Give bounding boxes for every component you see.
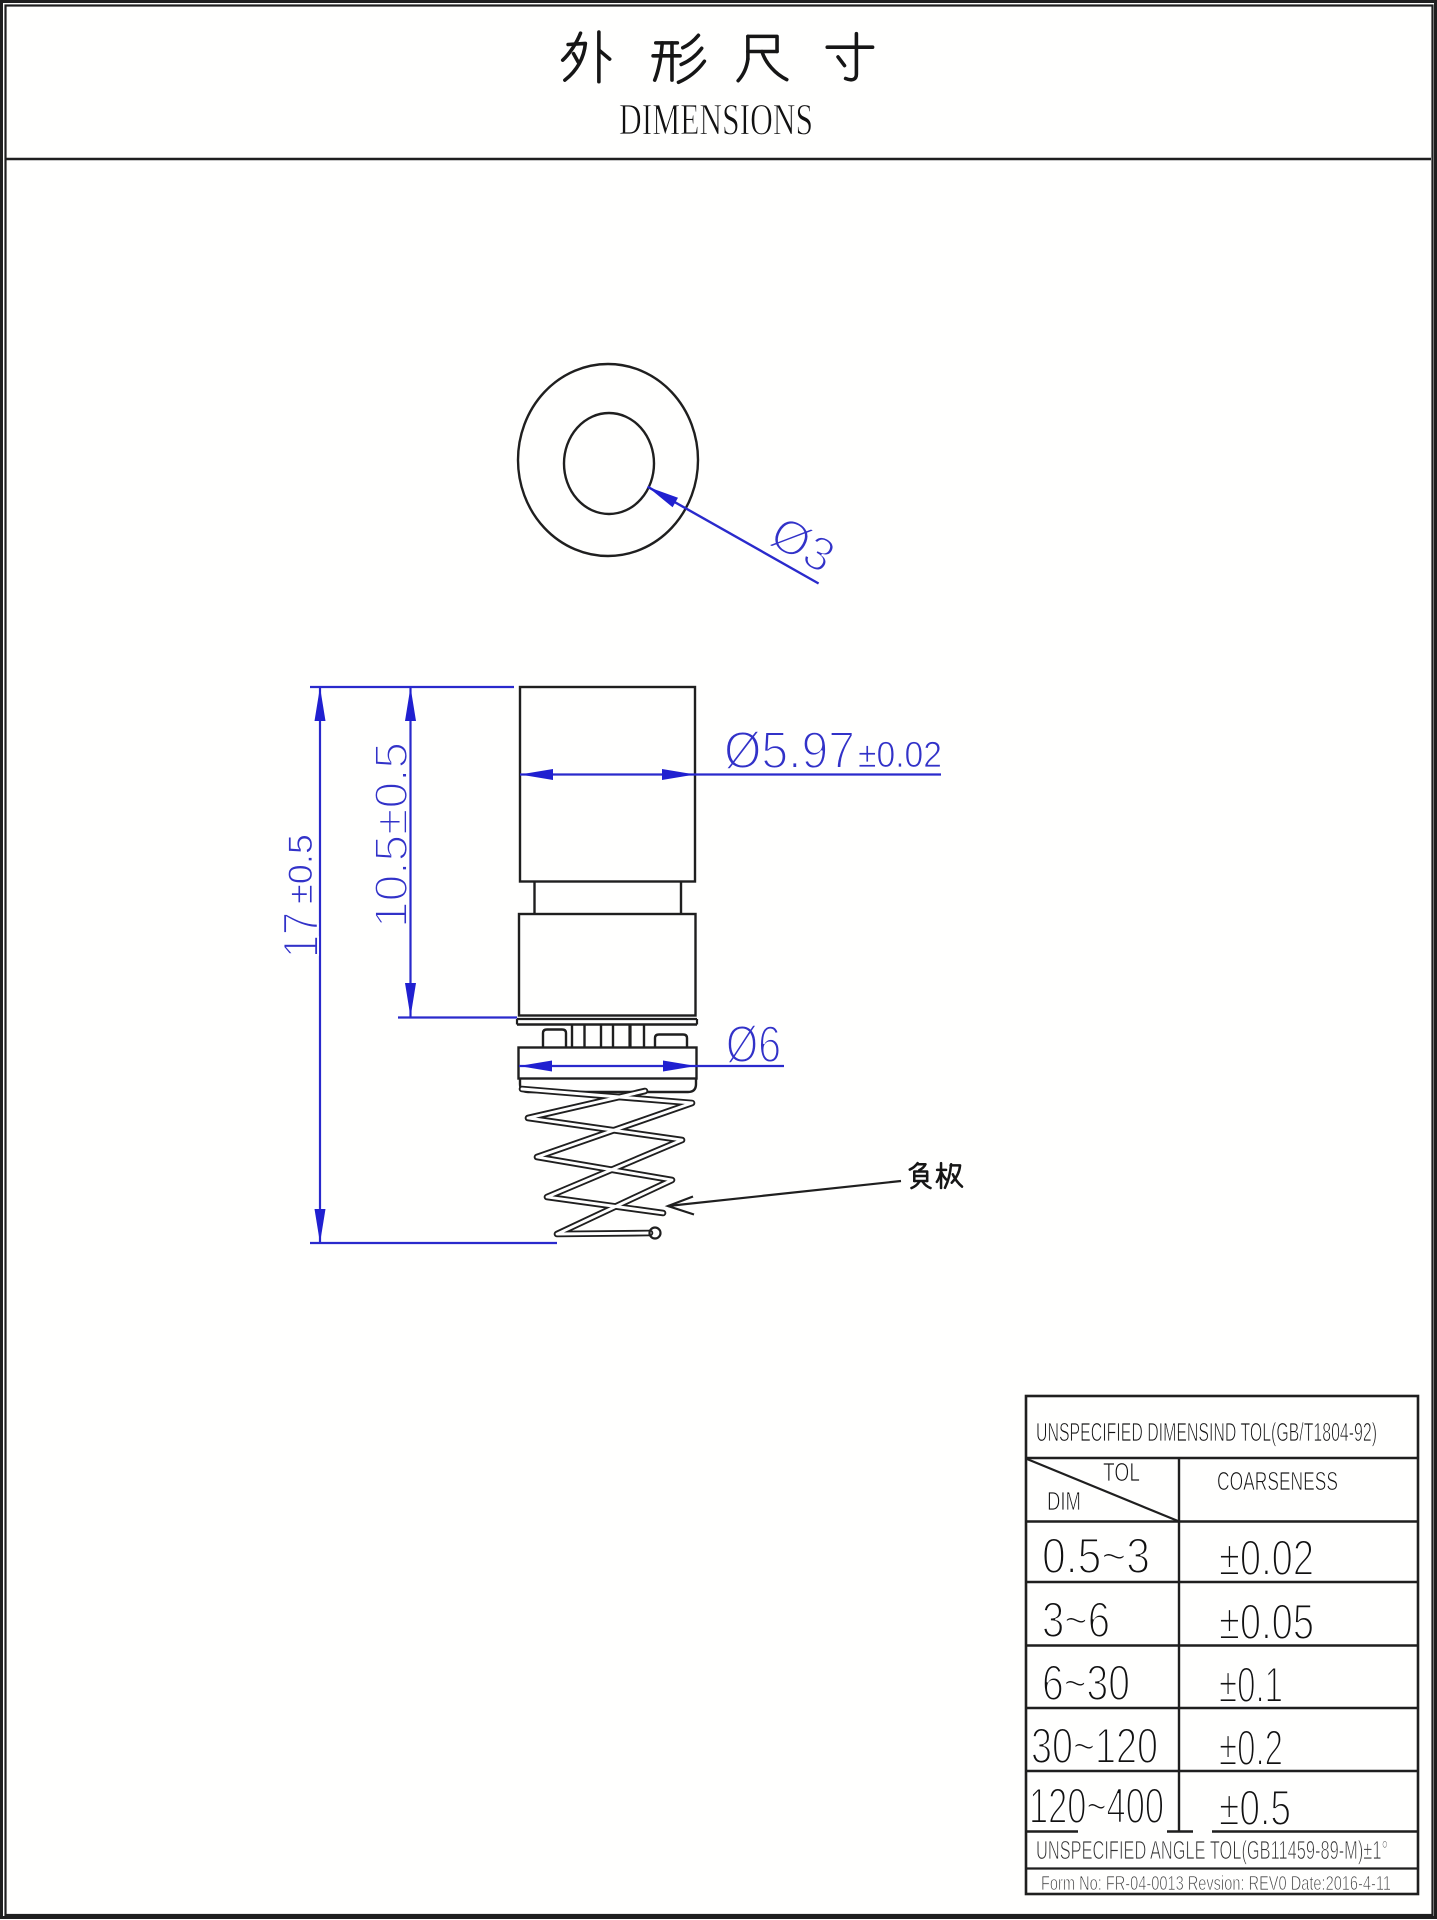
svg-text:6~30: 6~30 <box>1042 1655 1130 1711</box>
svg-text:±0.02: ±0.02 <box>1219 1530 1314 1586</box>
svg-text:DIM: DIM <box>1047 1486 1081 1516</box>
svg-text:120~400: 120~400 <box>1029 1778 1164 1834</box>
svg-text:3~6: 3~6 <box>1042 1592 1110 1648</box>
svg-text:±0.2: ±0.2 <box>1219 1720 1283 1776</box>
svg-text:UNSPECIFIED ANGLE TOL(GB11459-: UNSPECIFIED ANGLE TOL(GB11459-89-M)±1° <box>1036 1835 1388 1865</box>
svg-text:±0.5: ±0.5 <box>1219 1780 1291 1836</box>
svg-text:DIMENSIONS: DIMENSIONS <box>619 95 813 144</box>
svg-text:±0.02: ±0.02 <box>858 734 942 775</box>
svg-text:±0.05: ±0.05 <box>1219 1594 1314 1650</box>
svg-text:Form No: FR-04-0013 Revsion: R: Form No: FR-04-0013 Revsion: REV0 Date:2… <box>1041 1873 1391 1895</box>
svg-text:TOL: TOL <box>1103 1457 1140 1487</box>
svg-text:COARSENESS: COARSENESS <box>1217 1466 1338 1496</box>
svg-text:10.5±0.5: 10.5±0.5 <box>365 742 417 928</box>
svg-text:30~120: 30~120 <box>1031 1718 1158 1774</box>
svg-text:Ø6: Ø6 <box>726 1016 781 1074</box>
svg-text:0.5~3: 0.5~3 <box>1042 1528 1150 1584</box>
svg-text:17: 17 <box>273 912 329 958</box>
svg-text:±0.5: ±0.5 <box>282 834 320 904</box>
svg-text:UNSPECIFIED DIMENSIND TOL(GB/T: UNSPECIFIED DIMENSIND TOL(GB/T1804-92) <box>1036 1417 1377 1447</box>
svg-text:Ø5.97: Ø5.97 <box>724 722 855 780</box>
svg-text:±0.1: ±0.1 <box>1219 1657 1283 1713</box>
